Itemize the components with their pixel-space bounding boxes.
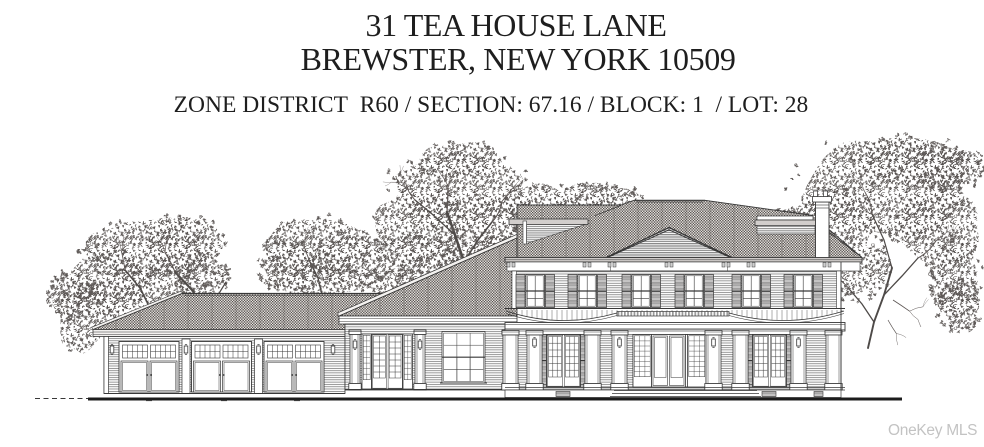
svg-text:OneKey MLS: OneKey MLS <box>888 422 977 439</box>
